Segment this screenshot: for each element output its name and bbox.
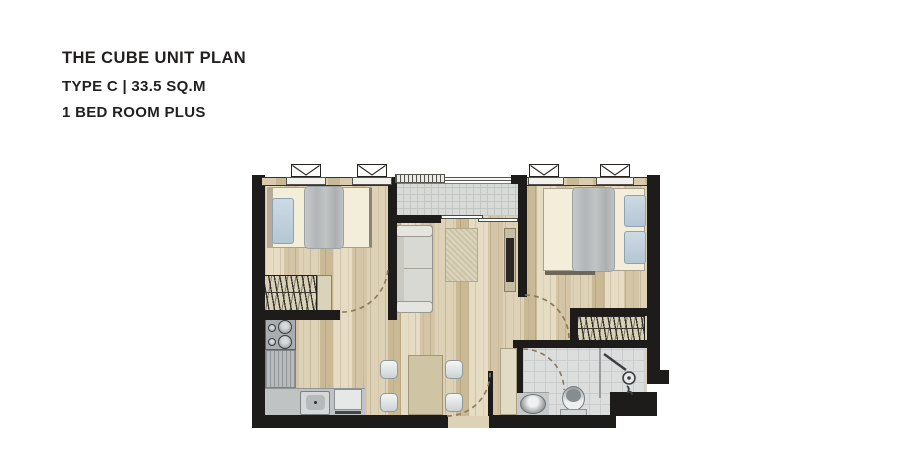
window-frame [286, 177, 326, 185]
wall-balcony-segment [393, 215, 441, 223]
window-icon [291, 164, 321, 177]
sliding-door-panel [478, 218, 518, 222]
floor-plan [248, 158, 669, 430]
wall-bathroom-left [517, 348, 523, 393]
wardrobe [262, 275, 317, 312]
sink-drain [314, 401, 317, 404]
bed-blanket [304, 186, 344, 249]
stove-burner [278, 335, 292, 349]
wall-bedroom [388, 177, 397, 320]
wall-wardrobe [570, 308, 647, 316]
tv-screen [506, 238, 514, 282]
sliding-door-panel [441, 215, 483, 219]
window-icon [357, 164, 387, 177]
bed-pillow [624, 231, 646, 264]
page-title: THE CUBE UNIT PLAN [62, 49, 246, 68]
stove-burner [278, 320, 292, 334]
window-frame [352, 177, 392, 185]
window-frame [528, 177, 564, 185]
rug [445, 228, 478, 282]
window-frame [596, 177, 634, 185]
balcony-floor [396, 183, 518, 216]
dining-chair [380, 360, 398, 379]
wardrobe [577, 316, 645, 342]
bed-pillow [624, 195, 646, 227]
unit-type-label: TYPE C | 33.5 SQ.M [62, 78, 246, 95]
wall-step [610, 392, 657, 416]
sofa-back [396, 237, 404, 301]
balcony-railing [395, 174, 445, 183]
wall-bottom [252, 415, 447, 428]
wash-basin [520, 394, 546, 414]
sofa-cushion-seam [404, 268, 432, 269]
dining-chair [380, 393, 398, 412]
entrance-opening [447, 416, 490, 428]
toilet-seat [566, 389, 581, 402]
wall-right [647, 175, 660, 384]
balcony-rail-jamb [511, 175, 518, 184]
wardrobe-side [317, 275, 332, 312]
wall-entry-stub [488, 371, 493, 418]
dining-chair [445, 393, 463, 412]
plan-header: THE CUBE UNIT PLAN TYPE C | 33.5 SQ.M 1 … [62, 49, 246, 130]
dining-chair [445, 360, 463, 379]
bed-bench [545, 271, 595, 275]
appliance [334, 389, 362, 410]
bed-blanket [572, 187, 615, 272]
wall-bathroom-top [513, 340, 647, 348]
window-icon [529, 164, 559, 177]
appliance-front [335, 411, 361, 414]
shower-partition [599, 348, 601, 398]
wall-master-bedroom [518, 175, 527, 297]
stove-burner [268, 338, 276, 346]
window-icon [600, 164, 630, 177]
bedroom-label: 1 BED ROOM PLUS [62, 104, 246, 121]
wall-notch [649, 370, 669, 384]
bed-pillow [272, 198, 294, 244]
wall-bedroom-bottom [262, 310, 340, 320]
wall-bottom [490, 415, 616, 428]
stove-burner [268, 324, 276, 332]
sofa-armrest [395, 225, 433, 237]
sofa-armrest [395, 301, 433, 313]
shoe-cabinet [500, 348, 517, 415]
wall-left [252, 175, 265, 428]
balcony-rail-line [445, 177, 511, 181]
drainboard [265, 350, 296, 388]
dining-table [408, 355, 443, 415]
bed-footboard [369, 188, 372, 247]
page: THE CUBE UNIT PLAN TYPE C | 33.5 SQ.M 1 … [0, 0, 916, 454]
